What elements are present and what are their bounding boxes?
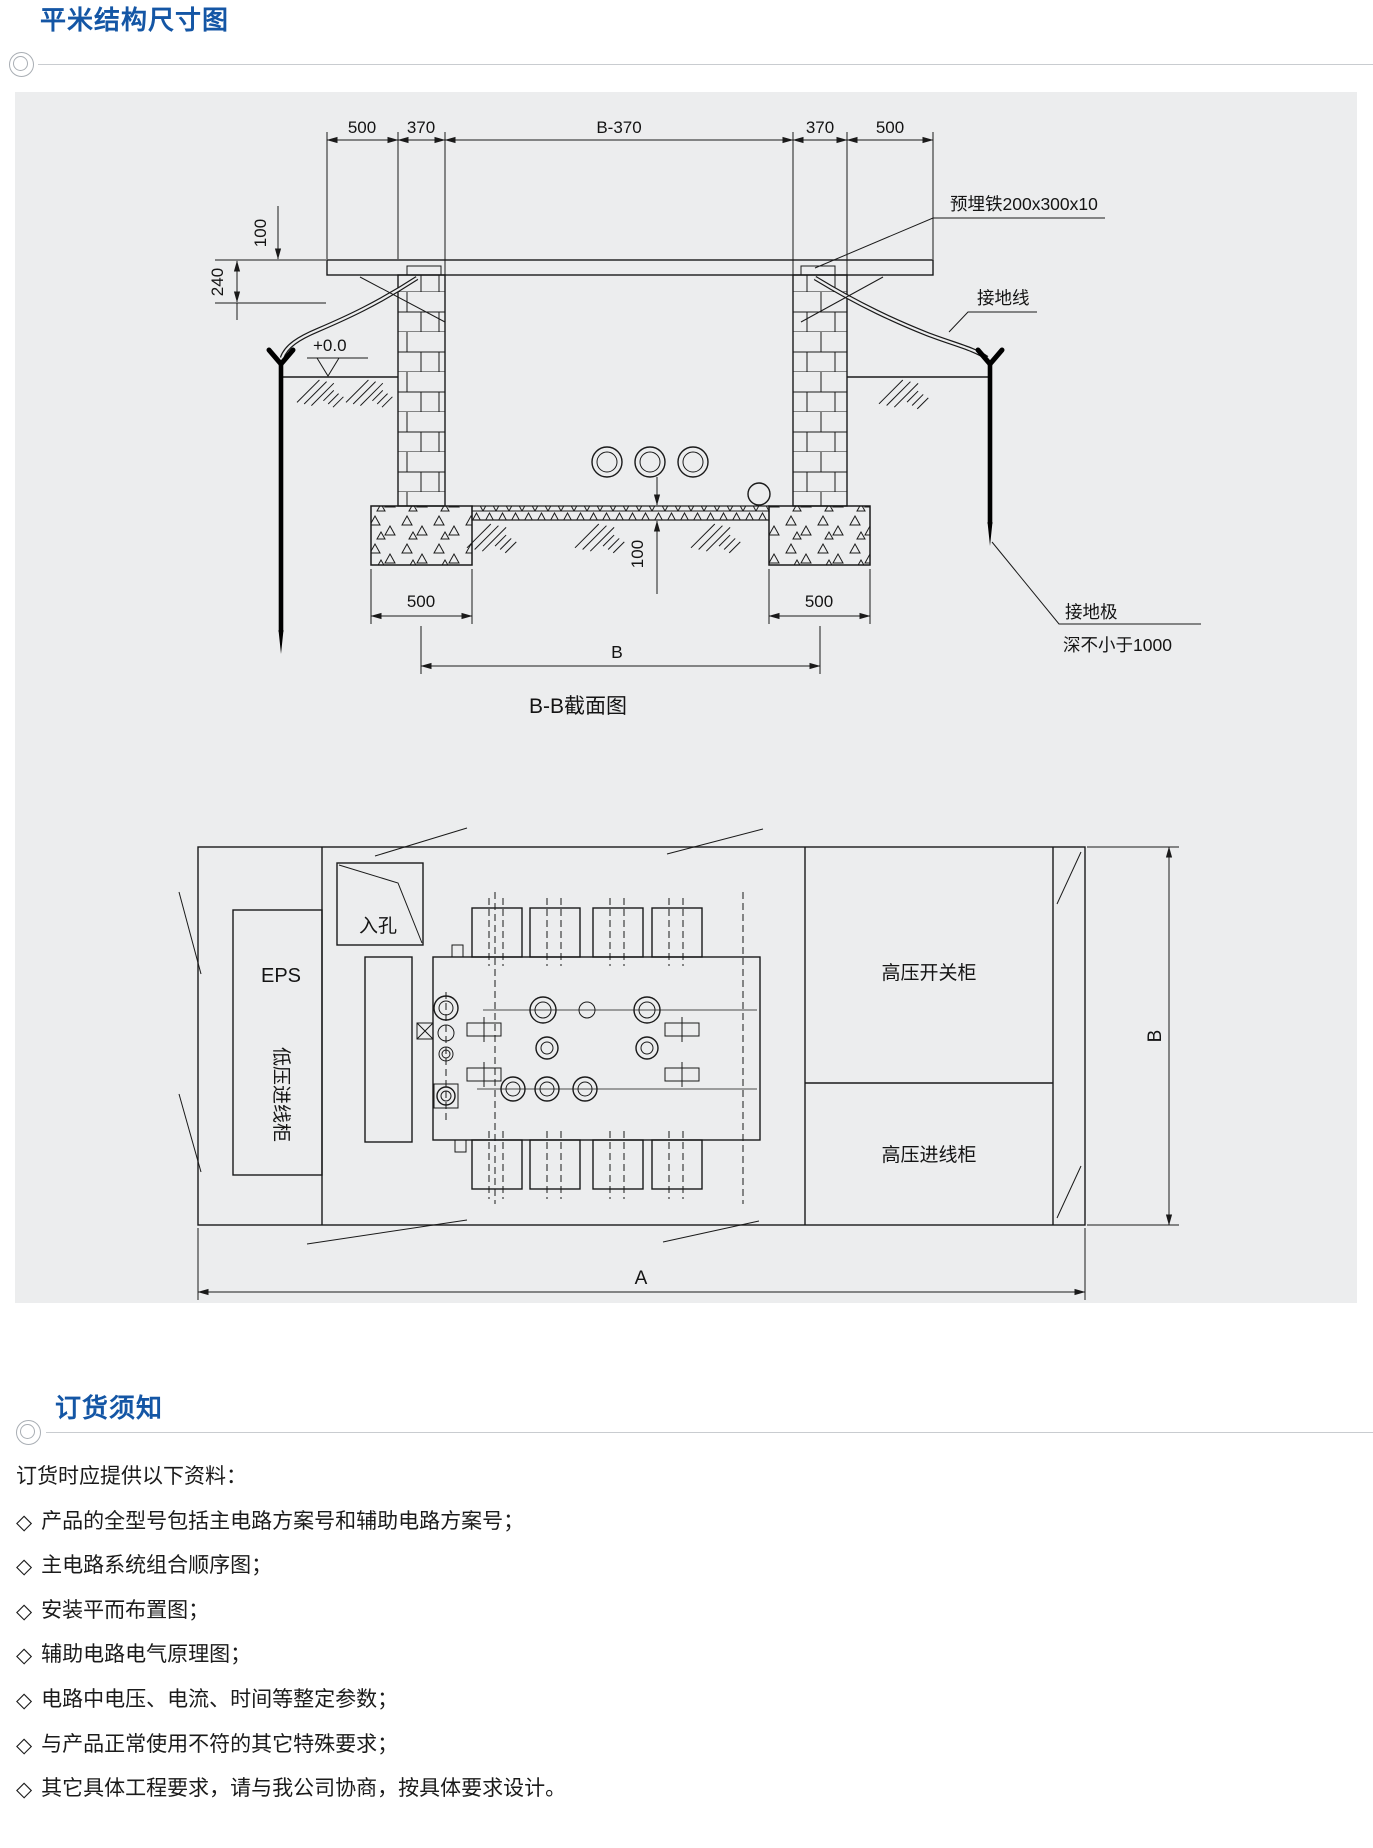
dim-500-top-right: 500 bbox=[876, 118, 904, 137]
note-item: ◇主电路系统组合顺序图； bbox=[16, 1544, 1346, 1589]
note-text: 产品的全型号包括主电路方案号和辅助电路方案号； bbox=[41, 1510, 524, 1533]
note-text: 安装平而布置图； bbox=[41, 1599, 209, 1622]
radiators-bottom bbox=[472, 1131, 702, 1199]
diamond-bullet-icon: ◇ bbox=[16, 1501, 32, 1546]
plan-view-drawing: EPS 低压进线柜 入孔 bbox=[179, 828, 1179, 1300]
note-text: 电路中电压、电流、时间等整定参数； bbox=[41, 1688, 398, 1711]
cs-structure bbox=[327, 260, 933, 565]
ring-ornament-icon bbox=[16, 1420, 41, 1445]
label-embedded-iron: 预埋铁200x300x10 bbox=[950, 194, 1098, 214]
note-item: ◇产品的全型号包括主电路方案号和辅助电路方案号； bbox=[16, 1500, 1346, 1545]
radiators-top bbox=[472, 898, 702, 966]
footing-left bbox=[371, 506, 472, 565]
note-item: ◇电路中电压、电流、时间等整定参数； bbox=[16, 1678, 1346, 1723]
dim-500-footing-right: 500 bbox=[805, 592, 833, 611]
dim-b-label: B bbox=[1145, 1030, 1166, 1043]
diamond-bullet-icon: ◇ bbox=[16, 1634, 32, 1679]
cs-bottom-dims: 500 500 B bbox=[371, 569, 870, 674]
level-mark: +0.0 bbox=[307, 336, 368, 376]
note-text: 主电路系统组合顺序图； bbox=[41, 1554, 272, 1577]
transformer-bushings bbox=[467, 997, 757, 1101]
edge-break-marks bbox=[179, 828, 1081, 1244]
cs-left-dims: 100 240 bbox=[208, 206, 326, 320]
section2-rule bbox=[0, 1418, 1373, 1448]
dim-500-footing-left: 500 bbox=[407, 592, 435, 611]
plan-dim-b: B bbox=[1087, 847, 1179, 1225]
dim-span-b: B bbox=[611, 642, 623, 662]
dim-a-label: A bbox=[635, 1268, 648, 1289]
notes-intro: 订货时应提供以下资料： bbox=[16, 1455, 1346, 1500]
label-ground-wire: 接地线 bbox=[977, 288, 1030, 308]
diamond-bullet-icon: ◇ bbox=[16, 1679, 32, 1724]
note-text: 辅助电路电气原理图； bbox=[41, 1643, 251, 1666]
footing-right bbox=[769, 506, 870, 565]
cable-duct bbox=[365, 957, 412, 1142]
diamond-bullet-icon: ◇ bbox=[16, 1724, 32, 1769]
ordering-notes: 订货时应提供以下资料： ◇产品的全型号包括主电路方案号和辅助电路方案号； ◇主电… bbox=[16, 1455, 1346, 1812]
floor-slab bbox=[472, 506, 769, 520]
cs-floor-dim: 100 bbox=[628, 477, 657, 594]
technical-drawing: 500 370 B-370 370 500 bbox=[15, 92, 1357, 1303]
note-item: ◇辅助电路电气原理图； bbox=[16, 1633, 1346, 1678]
diamond-bullet-icon: ◇ bbox=[16, 1590, 32, 1635]
cross-section-drawing: 500 370 B-370 370 500 bbox=[208, 118, 1201, 718]
dim-370-top-right: 370 bbox=[806, 118, 834, 137]
lv-incoming-label: 低压进线柜 bbox=[270, 1047, 292, 1142]
dim-b-370: B-370 bbox=[596, 118, 641, 137]
cross-section-caption: B-B截面图 bbox=[529, 695, 627, 718]
earth-rod-right bbox=[978, 350, 1002, 546]
manhole: 入孔 bbox=[337, 863, 423, 945]
ring-ornament-icon bbox=[9, 52, 34, 77]
label-earth-rod-depth: 深不小于1000 bbox=[1063, 635, 1172, 655]
level-label: +0.0 bbox=[313, 336, 347, 355]
plan-dim-a: A bbox=[198, 1228, 1085, 1300]
dim-100-parapet: 100 bbox=[251, 219, 270, 247]
section1-title: 平米结构尺寸图 bbox=[40, 0, 229, 37]
manhole-label: 入孔 bbox=[359, 915, 397, 937]
transformer bbox=[417, 892, 760, 1204]
hv-switch-cabinet-label: 高压开关柜 bbox=[881, 962, 976, 984]
diamond-bullet-icon: ◇ bbox=[16, 1545, 32, 1590]
earth-rod-left bbox=[269, 350, 293, 654]
section1-rule bbox=[0, 50, 1373, 80]
label-earth-rod: 接地极 bbox=[1065, 602, 1118, 622]
eps-label: EPS bbox=[261, 965, 301, 987]
note-item: ◇与产品正常使用不符的其它特殊要求； bbox=[16, 1723, 1346, 1768]
note-item: ◇其它具体工程要求，请与我公司协商，按具体要求设计。 bbox=[16, 1767, 1346, 1812]
transformer-left-fittings bbox=[417, 996, 458, 1108]
note-text: 与产品正常使用不符的其它特殊要求； bbox=[41, 1733, 398, 1756]
divider-line bbox=[38, 64, 1373, 65]
cs-labels: 预埋铁200x300x10 接地线 接地极 深不小于1000 bbox=[815, 194, 1201, 655]
hv-incoming-cabinet-label: 高压进线柜 bbox=[881, 1144, 976, 1166]
drawing-panel: 500 370 B-370 370 500 bbox=[15, 92, 1357, 1303]
dim-100-floor: 100 bbox=[628, 540, 647, 568]
dim-240-beam: 240 bbox=[208, 268, 227, 296]
conduit-pipes bbox=[592, 447, 708, 477]
note-item: ◇安装平而布置图； bbox=[16, 1589, 1346, 1634]
dim-500-top-left: 500 bbox=[348, 118, 376, 137]
wire-duct-circle bbox=[748, 483, 770, 505]
divider-line bbox=[46, 1432, 1373, 1433]
plan-outer-wall bbox=[198, 847, 1085, 1225]
note-text: 其它具体工程要求，请与我公司协商，按具体要求设计。 bbox=[41, 1777, 566, 1800]
dim-370-top-left: 370 bbox=[407, 118, 435, 137]
diamond-bullet-icon: ◇ bbox=[16, 1768, 32, 1813]
